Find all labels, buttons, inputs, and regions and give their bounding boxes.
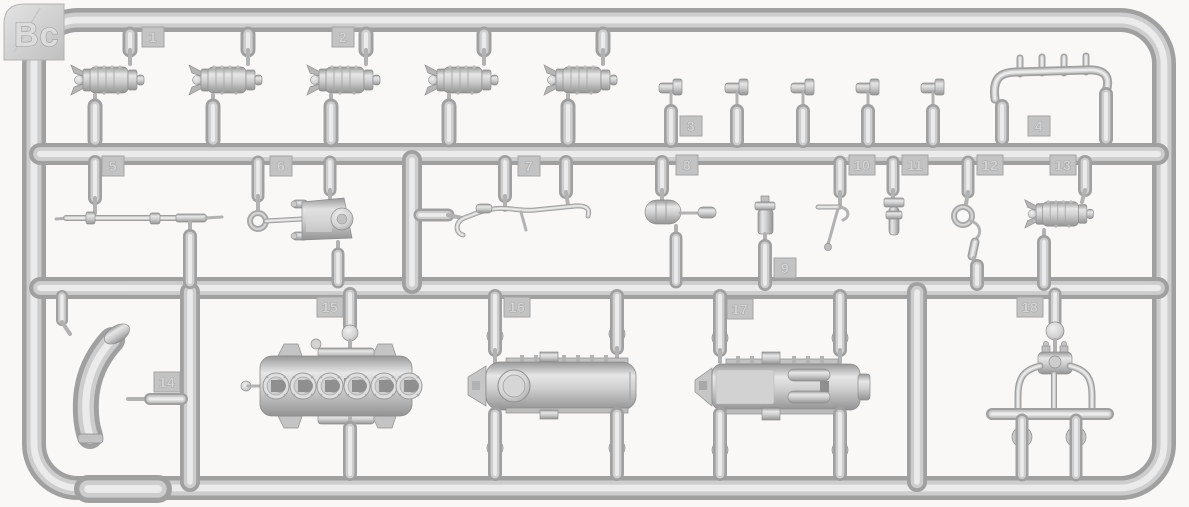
part-number-tag-9: 9 [774, 258, 796, 278]
sprue-photo: Bc 1 2 3 4 5 6 7 8 9 10 11 12 13 14 15 1… [0, 0, 1189, 507]
part-9-block [755, 196, 775, 284]
part-18-assembly [992, 294, 1108, 475]
part-11-bolt [884, 162, 904, 235]
svg-text:11: 11 [907, 157, 923, 173]
part-3-instance-3 [791, 79, 814, 141]
part-muffler-2 [189, 34, 262, 140]
part-number-tag-5: 5 [102, 156, 124, 176]
part-number-tag-17: 17 [727, 299, 753, 319]
part-number-tag-16: 16 [504, 297, 530, 317]
svg-text:1: 1 [149, 29, 157, 45]
svg-text:7: 7 [525, 158, 533, 174]
part-number-tag-14: 14 [154, 372, 180, 392]
svg-text:2: 2 [339, 29, 347, 45]
part-10-fork [818, 162, 848, 251]
part-number-tag-15: 15 [317, 297, 343, 317]
part-number-tag-7: 7 [518, 156, 540, 176]
part-number-tag-2: 2 [332, 27, 354, 47]
part-number-tag-13: 13 [1050, 155, 1076, 175]
part-number-tag-1: 1 [142, 27, 164, 47]
svg-text:4: 4 [1035, 118, 1043, 134]
svg-text:9: 9 [781, 260, 789, 276]
part-17-long-block [695, 296, 870, 474]
svg-text:8: 8 [683, 157, 691, 173]
part-6-bracket [250, 162, 353, 282]
part-3-instance-5 [921, 79, 944, 141]
part-number-tag-6: 6 [270, 156, 292, 176]
svg-text:16: 16 [509, 299, 526, 315]
part-number-tag-11: 11 [902, 155, 928, 175]
part-3-instance-4 [856, 79, 879, 141]
part-3-instance-2 [725, 79, 748, 141]
sprue-id-tab: Bc [4, 4, 64, 60]
svg-text:5: 5 [109, 158, 117, 174]
part-15-engine-block [241, 294, 422, 474]
part-number-tag-10: 10 [849, 155, 875, 175]
part-16-long-block [468, 296, 636, 474]
part-number-tag-8: 8 [676, 155, 698, 175]
part-3-instance-1 [659, 79, 682, 141]
sprue-canvas: Bc 1 2 3 4 5 6 7 8 9 10 11 12 13 14 15 1… [0, 0, 1189, 507]
svg-text:18: 18 [1022, 299, 1039, 315]
svg-text:14: 14 [159, 374, 176, 390]
part-12-eye-hook [954, 162, 980, 284]
svg-text:13: 13 [1055, 157, 1072, 173]
part-5-rod [56, 162, 222, 282]
part-14-curved-pipe [62, 296, 182, 443]
svg-text:17: 17 [732, 301, 749, 317]
part-muffler-1 [71, 34, 144, 140]
part-muffler-4 [425, 34, 498, 140]
part-number-tag-4: 4 [1028, 116, 1050, 136]
part-muffler-3 [307, 34, 380, 140]
part-13-muffler [1025, 162, 1094, 284]
part-muffler-5 [544, 34, 617, 140]
part-number-tag-18: 18 [1017, 297, 1043, 317]
svg-text:12: 12 [982, 157, 999, 173]
sprue-id-label: Bc [14, 16, 59, 54]
part-number-tag-12: 12 [977, 155, 1003, 175]
part-7-wavy-rod [420, 162, 589, 235]
part-number-tag-3: 3 [680, 116, 702, 136]
svg-text:6: 6 [277, 158, 285, 174]
part-8-capsule [645, 162, 716, 282]
svg-text:15: 15 [322, 299, 339, 315]
svg-text:10: 10 [854, 157, 871, 173]
svg-text:3: 3 [687, 118, 695, 134]
part-4-rail [994, 56, 1107, 139]
